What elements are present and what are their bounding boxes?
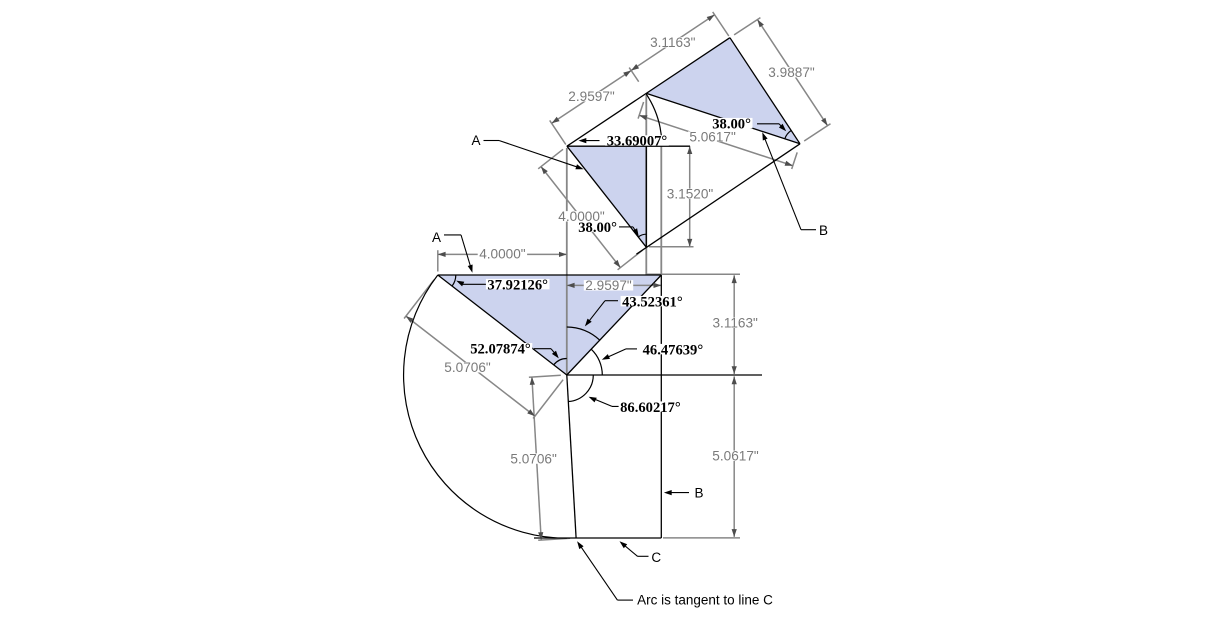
svg-text:46.47639°: 46.47639° bbox=[643, 342, 704, 358]
svg-text:43.52361°: 43.52361° bbox=[622, 294, 683, 310]
svg-text:3.1163": 3.1163" bbox=[712, 316, 758, 331]
svg-text:C: C bbox=[651, 550, 661, 565]
svg-text:A: A bbox=[432, 230, 441, 245]
svg-text:5.0706": 5.0706" bbox=[444, 360, 491, 375]
svg-text:B: B bbox=[694, 486, 703, 501]
svg-text:B: B bbox=[819, 223, 828, 238]
svg-text:2.9597": 2.9597" bbox=[568, 89, 615, 104]
svg-text:3.1520": 3.1520" bbox=[667, 187, 714, 202]
svg-text:33.69007°: 33.69007° bbox=[607, 134, 668, 150]
svg-text:3.1163": 3.1163" bbox=[650, 35, 696, 50]
svg-text:38.00°: 38.00° bbox=[712, 116, 751, 132]
svg-text:2.9597": 2.9597" bbox=[585, 278, 632, 293]
svg-text:3.9887": 3.9887" bbox=[768, 65, 815, 80]
svg-text:5.0706": 5.0706" bbox=[510, 451, 557, 466]
svg-text:52.07874°: 52.07874° bbox=[470, 341, 531, 357]
svg-text:86.60217°: 86.60217° bbox=[620, 400, 681, 416]
svg-text:4.0000": 4.0000" bbox=[479, 246, 526, 261]
svg-text:Arc is tangent to line C: Arc is tangent to line C bbox=[637, 593, 773, 608]
svg-text:A: A bbox=[471, 133, 480, 148]
svg-text:38.00°: 38.00° bbox=[578, 220, 617, 236]
svg-text:37.92126°: 37.92126° bbox=[487, 277, 548, 293]
svg-text:5.0617": 5.0617" bbox=[712, 449, 759, 464]
